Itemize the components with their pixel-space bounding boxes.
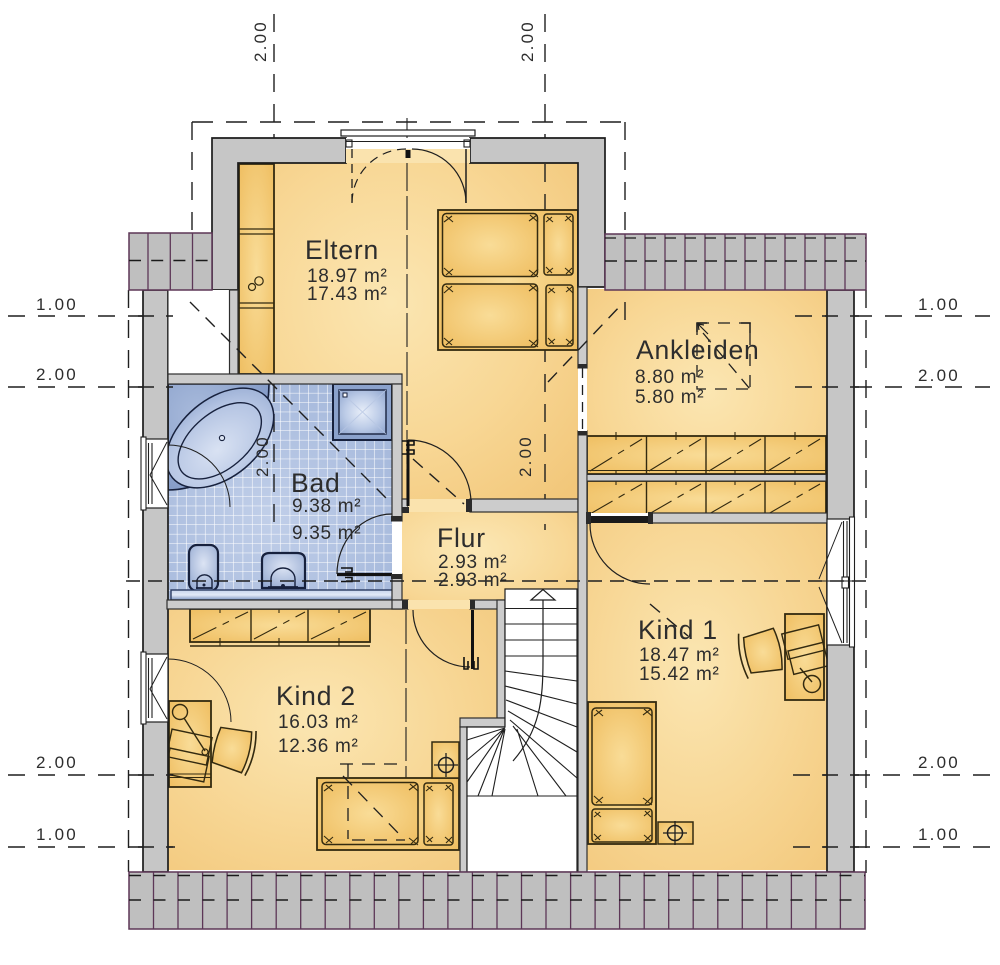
svg-text:Flur: Flur: [437, 523, 486, 553]
svg-text:2.00: 2.00: [918, 753, 960, 772]
svg-text:1.00: 1.00: [918, 825, 960, 844]
svg-text:18.47 m²: 18.47 m²: [639, 645, 720, 666]
svg-text:1.00: 1.00: [36, 825, 78, 844]
svg-text:2.00: 2.00: [36, 753, 78, 772]
svg-text:9.38 m²: 9.38 m²: [292, 496, 361, 517]
svg-text:Eltern: Eltern: [305, 235, 379, 265]
svg-text:8.80 m²: 8.80 m²: [635, 367, 704, 388]
svg-text:1.00: 1.00: [36, 295, 78, 314]
svg-text:17.43 m²: 17.43 m²: [307, 284, 388, 305]
svg-text:Ankleiden: Ankleiden: [636, 335, 760, 365]
svg-text:2.00: 2.00: [516, 435, 535, 477]
svg-text:2.93 m²: 2.93 m²: [438, 570, 507, 591]
svg-text:Bad: Bad: [291, 468, 341, 498]
svg-text:2.00: 2.00: [36, 365, 78, 384]
svg-text:2.00: 2.00: [253, 435, 272, 477]
svg-text:Kind 1: Kind 1: [638, 615, 718, 645]
svg-text:2.00: 2.00: [918, 366, 960, 385]
svg-text:2.00: 2.00: [518, 20, 537, 62]
svg-text:1.00: 1.00: [918, 295, 960, 314]
svg-text:Kind 2: Kind 2: [276, 681, 356, 711]
svg-text:12.36 m²: 12.36 m²: [278, 736, 359, 757]
svg-text:5.80 m²: 5.80 m²: [635, 387, 704, 408]
svg-text:16.03 m²: 16.03 m²: [278, 712, 359, 733]
svg-text:2.00: 2.00: [251, 20, 270, 62]
svg-text:9.35 m²: 9.35 m²: [292, 523, 361, 544]
svg-text:15.42 m²: 15.42 m²: [639, 664, 720, 685]
